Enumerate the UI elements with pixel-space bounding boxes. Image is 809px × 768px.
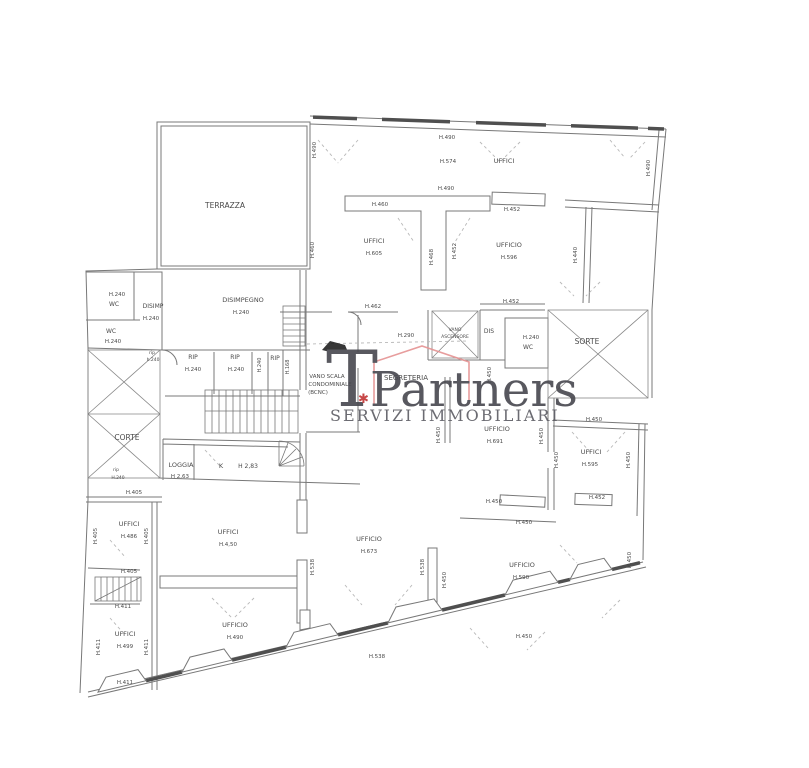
plan-label: ASCENSORE	[441, 334, 469, 340]
plan-label: H.596	[501, 255, 518, 261]
plan-label: H.452	[452, 243, 458, 259]
plan-label: UFFICIO	[356, 535, 382, 543]
plan-label: H.490	[312, 141, 318, 158]
plan-label: SORTE	[575, 337, 600, 346]
plan-label: RIP	[188, 354, 198, 361]
plan-label: H.490	[646, 159, 652, 176]
plan-label: H.590	[513, 575, 530, 581]
plan-label: H.240	[111, 475, 124, 481]
plan-label: UFFICI	[494, 157, 515, 165]
plan-label: H.168	[285, 360, 291, 375]
plan-label: UFFICI	[119, 520, 140, 528]
plan-label: H.452	[504, 207, 520, 213]
plan-label: H.486	[121, 534, 138, 540]
plan-label: UFFICIO	[509, 561, 535, 569]
plan-label: VANO	[449, 327, 462, 333]
plan-label: h.240	[147, 357, 160, 363]
plan-label: H.450	[554, 451, 560, 468]
plan-label: H 2,63	[171, 474, 190, 480]
small-left-staircase	[95, 577, 141, 601]
plan-label: H.450	[442, 571, 448, 588]
plan-label: H.240	[523, 335, 540, 341]
plan-label: TERRAZZA	[204, 201, 246, 210]
plan-label: UFFICIO	[496, 241, 522, 249]
plan-label: H.490	[438, 186, 455, 192]
plan-label: H.452	[503, 299, 519, 305]
plan-label: H.290	[398, 333, 415, 339]
plan-label: H.405	[93, 527, 99, 544]
plan-label: H.460	[310, 241, 316, 258]
plan-label: H.462	[365, 304, 381, 310]
plan-label: H.240	[228, 367, 245, 373]
plan-label: H 2,83	[238, 463, 258, 470]
plan-label: rip	[113, 467, 119, 473]
plan-label: UFFICI	[581, 448, 602, 456]
floorplan-page: TERRAZZAH.490H.460H.490H.574UFFICIH.490H…	[0, 0, 809, 768]
hatch-corte	[88, 350, 160, 478]
plan-label: H.240	[257, 358, 263, 373]
plan-label: rip	[149, 350, 155, 356]
plan-label: H.440	[573, 246, 579, 263]
plan-label: H.411	[117, 680, 133, 686]
plan-label: WC	[106, 328, 116, 335]
plan-label: WC	[109, 301, 119, 308]
upper-stair-flight	[283, 306, 305, 346]
plan-label: H.240	[185, 367, 202, 373]
plan-label: H.595	[582, 462, 599, 468]
plan-label: H.405	[121, 569, 138, 575]
plan-label: H.538	[369, 654, 386, 660]
plan-label: H.673	[361, 549, 378, 555]
plan-label: H.4,50	[219, 542, 238, 548]
plan-label: CORTE	[114, 433, 139, 442]
plan-label: H.450	[539, 427, 545, 444]
plan-label: H.450	[516, 520, 533, 526]
plan-label: H.460	[372, 202, 389, 208]
floor-plan-drawing: TERRAZZAH.490H.460H.490H.574UFFICIH.490H…	[0, 0, 809, 768]
plan-label: RIP	[270, 355, 280, 362]
plan-label: H.240	[105, 339, 122, 345]
plan-label: H.490	[439, 135, 456, 141]
plan-label: UFFICI	[218, 528, 239, 536]
watermark-tagline-text: SERVIZI IMMOBILIARI	[330, 406, 560, 425]
plan-label: H.538	[420, 558, 426, 575]
plan-label: UFFICIO	[484, 425, 510, 433]
plan-label: WC	[523, 344, 533, 351]
plan-label: H.411	[144, 639, 150, 655]
plan-label: H.411	[115, 604, 131, 610]
plan-label: H.240	[109, 292, 126, 298]
plan-label: H.411	[96, 639, 102, 655]
watermark-logo: T ✱ Partners SERVIZI IMMOBILIARI	[322, 335, 578, 425]
plan-label: H.450	[627, 551, 633, 568]
plan-label: H.490	[227, 635, 244, 641]
plan-label: H.499	[117, 644, 134, 650]
plan-label: H.405	[144, 527, 150, 544]
plan-label: DIS	[484, 328, 494, 335]
plan-label: H.240	[233, 310, 250, 316]
plan-label: LOGGIA	[169, 461, 194, 469]
plan-label: H.450	[516, 634, 533, 640]
plan-label: UFFICIO	[222, 621, 248, 629]
plan-label: H.452	[589, 495, 605, 501]
plan-label: DISIMP	[143, 303, 164, 310]
plan-label: K	[219, 462, 224, 470]
plan-label: H.574	[440, 159, 457, 165]
plan-label: H.450	[586, 417, 603, 423]
plan-label: UFFICI	[364, 237, 385, 245]
plan-label: UFFICI	[115, 630, 136, 638]
watermark-accent-mark: ✱	[358, 392, 369, 407]
plan-label: H.691	[487, 439, 503, 445]
plan-label: H.405	[126, 490, 143, 496]
plan-label: H.468	[429, 248, 435, 265]
terrace-outline	[157, 122, 310, 269]
plan-label: H.450	[626, 451, 632, 468]
plan-label: H.450	[486, 499, 503, 505]
plan-label: DISIMPEGNO	[222, 296, 264, 304]
plan-label: H.240	[143, 316, 160, 322]
plan-label: H.450	[436, 426, 442, 443]
plan-label: H.605	[366, 251, 383, 257]
plan-label: RIP	[230, 354, 240, 361]
plan-label: (BCNC)	[308, 390, 328, 396]
plan-label: H.538	[310, 558, 316, 575]
